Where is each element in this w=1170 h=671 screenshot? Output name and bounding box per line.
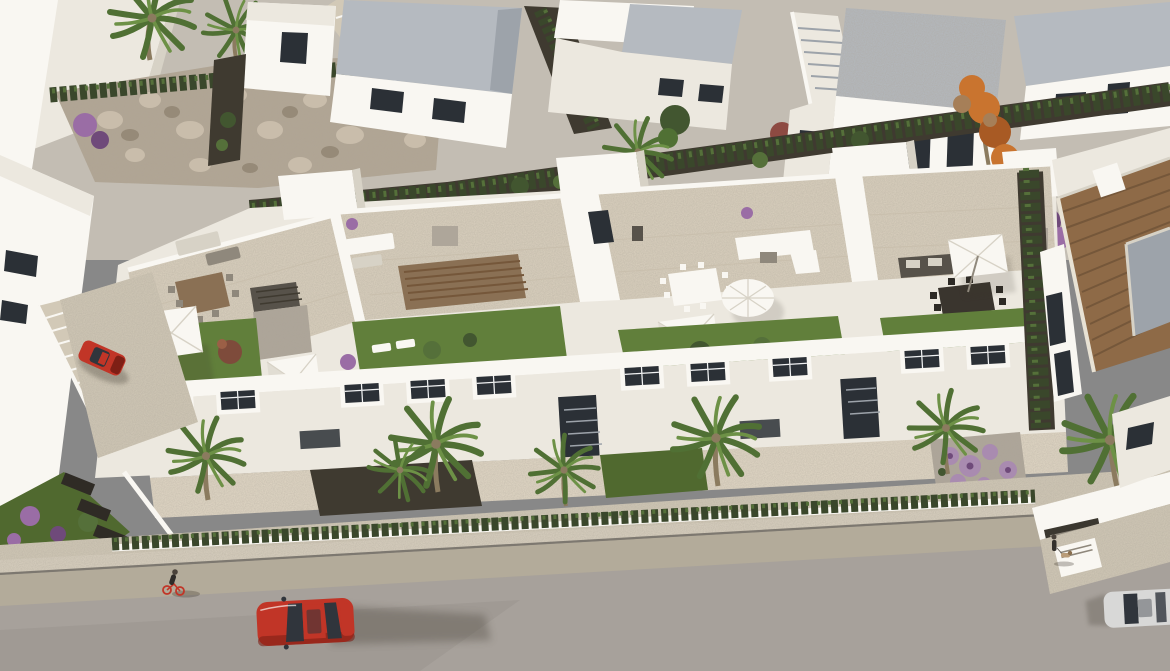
aerial-render — [0, 0, 1170, 671]
dog-walker-person — [1052, 540, 1057, 551]
render-stage — [0, 0, 1170, 671]
stairwell-recess — [840, 377, 879, 439]
white-dining-table — [668, 268, 722, 306]
